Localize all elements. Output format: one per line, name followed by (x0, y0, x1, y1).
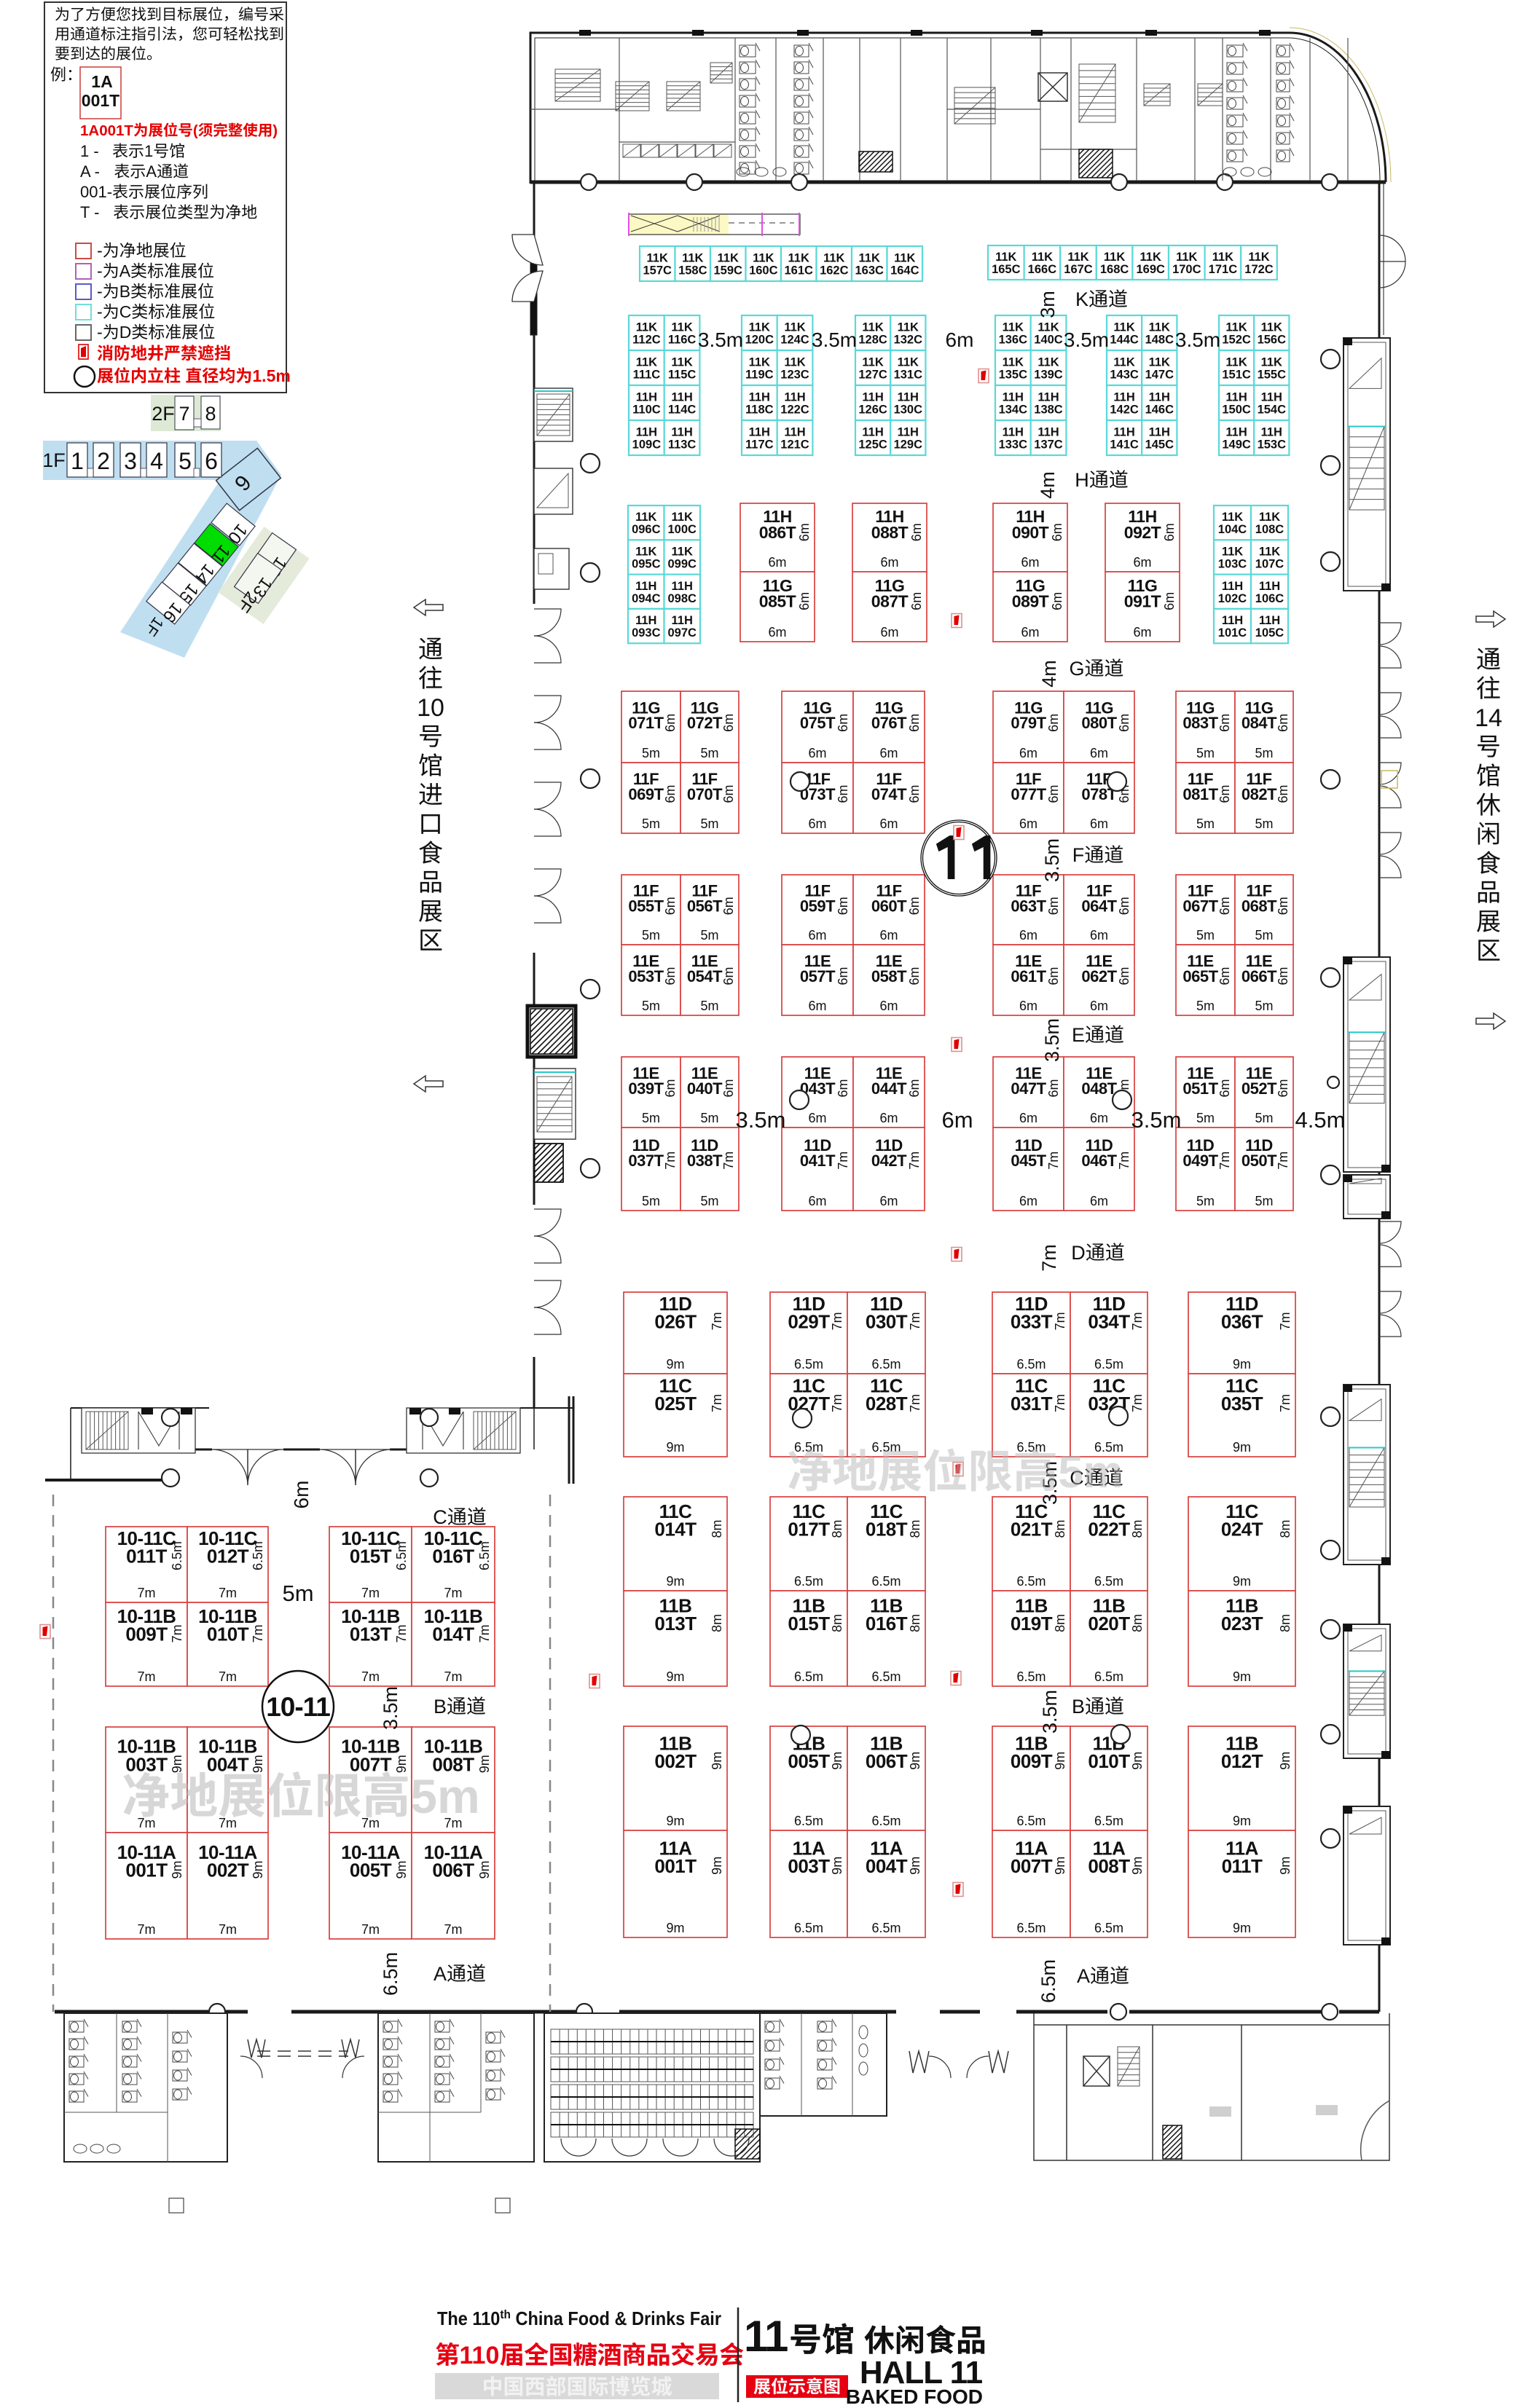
svg-text:3.5m: 3.5m (1039, 1690, 1061, 1734)
svg-text:11H: 11H (898, 391, 919, 404)
svg-text:6m: 6m (797, 523, 812, 541)
svg-text:9m: 9m (666, 1357, 684, 1372)
svg-text:150C: 150C (1222, 404, 1251, 417)
svg-text:11H: 11H (636, 426, 657, 439)
svg-text:6m: 6m (907, 897, 922, 915)
svg-text:T -: T - (80, 203, 99, 221)
svg-text:6.5m: 6.5m (1016, 1921, 1046, 1935)
svg-text:028T: 028T (866, 1393, 908, 1414)
svg-text:6m: 6m (797, 592, 812, 610)
svg-text:035T: 035T (1221, 1393, 1263, 1414)
svg-text:6m: 6m (663, 897, 678, 915)
svg-text:060T: 060T (871, 897, 907, 916)
svg-text:11K: 11K (682, 252, 703, 265)
svg-text:3.5m: 3.5m (380, 1686, 401, 1730)
svg-text:124C: 124C (780, 334, 809, 347)
svg-text:11K: 11K (859, 252, 880, 265)
svg-text:054T: 054T (687, 967, 723, 985)
svg-text:9m: 9m (1130, 1752, 1145, 1770)
svg-text:6m: 6m (1162, 523, 1177, 541)
svg-text:8m: 8m (710, 1614, 724, 1632)
svg-text:9m: 9m (1053, 1857, 1067, 1875)
svg-text:045T: 045T (1011, 1152, 1046, 1170)
svg-text:065T: 065T (1182, 967, 1218, 985)
svg-text:6m: 6m (1090, 817, 1108, 831)
svg-text:11K: 11K (635, 511, 656, 524)
svg-text:1: 1 (144, 142, 153, 160)
svg-text:071T: 071T (628, 714, 664, 732)
svg-text:074T: 074T (871, 785, 907, 803)
svg-text:050T: 050T (1241, 1152, 1277, 1170)
svg-text:9m: 9m (666, 1921, 684, 1935)
svg-text:6m: 6m (721, 1079, 736, 1097)
svg-text:6.5m: 6.5m (871, 1921, 901, 1935)
svg-text:063T: 063T (1011, 897, 1046, 916)
svg-text:128C: 128C (858, 334, 887, 347)
svg-text:9m: 9m (1233, 1574, 1251, 1589)
svg-text:6m: 6m (808, 746, 826, 760)
svg-text:145C: 145C (1145, 438, 1174, 452)
svg-text:121C: 121C (780, 438, 809, 452)
svg-text:7m: 7m (1217, 1152, 1232, 1170)
svg-text:031T: 031T (1011, 1393, 1053, 1414)
svg-text:11K: 11K (749, 356, 770, 369)
svg-text:7m: 7m (1276, 1152, 1290, 1170)
svg-text:6m: 6m (1019, 1194, 1037, 1208)
svg-text:123C: 123C (780, 369, 809, 382)
svg-text:6m: 6m (879, 1111, 898, 1125)
svg-text:147C: 147C (1145, 369, 1174, 382)
svg-text:6m: 6m (1021, 625, 1039, 640)
svg-text:5m: 5m (1255, 746, 1273, 760)
svg-text:6m: 6m (1050, 523, 1064, 541)
svg-text:11K: 11K (749, 321, 770, 334)
svg-text:004T: 004T (207, 1753, 249, 1775)
svg-text:5m: 5m (1058, 1447, 1123, 1498)
svg-text:9m: 9m (394, 1860, 409, 1878)
svg-text:11K: 11K (1140, 251, 1161, 264)
svg-text:066T: 066T (1241, 967, 1277, 985)
svg-text:7m: 7m (361, 1669, 380, 1684)
svg-text:6m: 6m (721, 897, 736, 915)
svg-text:7m: 7m (1278, 1312, 1292, 1330)
svg-text:B: B (1072, 1696, 1085, 1718)
svg-text:025T: 025T (654, 1393, 697, 1414)
svg-text:5m: 5m (700, 928, 718, 943)
svg-text:5m: 5m (700, 817, 718, 831)
svg-text:7m: 7m (908, 1394, 922, 1412)
svg-text:11K: 11K (1113, 321, 1134, 334)
svg-text:7: 7 (179, 403, 189, 425)
svg-text:062T: 062T (1081, 967, 1117, 985)
svg-text:G: G (1070, 658, 1085, 680)
svg-text:012T: 012T (207, 1546, 249, 1567)
svg-text:092T: 092T (1124, 523, 1161, 542)
svg-text:11H: 11H (1037, 391, 1059, 404)
svg-text:007T: 007T (350, 1753, 392, 1775)
svg-text:7m: 7m (721, 1152, 736, 1170)
svg-text:6m: 6m (1019, 999, 1037, 1013)
svg-text:012T: 012T (1221, 1750, 1263, 1772)
svg-text:11K: 11K (1037, 321, 1059, 334)
svg-text:7m: 7m (1117, 1152, 1131, 1170)
svg-text:6.5m: 6.5m (794, 1357, 823, 1372)
svg-text:001T: 001T (654, 1855, 697, 1877)
svg-text:7m: 7m (251, 1624, 265, 1642)
svg-text:6m: 6m (836, 1079, 850, 1097)
svg-text:9m: 9m (170, 1860, 184, 1878)
svg-text:137C: 137C (1034, 438, 1063, 452)
svg-text:105C: 105C (1255, 626, 1284, 640)
svg-text:018T: 018T (866, 1519, 908, 1541)
svg-text:11H: 11H (1113, 391, 1134, 404)
svg-text:149C: 149C (1222, 438, 1251, 452)
svg-text:11H: 11H (635, 614, 656, 627)
svg-text:E: E (1072, 1024, 1085, 1046)
svg-text:B: B (434, 1696, 447, 1718)
svg-text:110: 110 (460, 2342, 500, 2369)
svg-text:7m: 7m (219, 1669, 237, 1684)
svg-text:11K: 11K (671, 356, 692, 369)
svg-text:11K: 11K (671, 321, 692, 334)
svg-text:102C: 102C (1218, 592, 1247, 605)
svg-text:6m: 6m (1019, 817, 1037, 831)
svg-text:5m: 5m (1196, 928, 1215, 943)
svg-text:7m: 7m (1278, 1394, 1292, 1412)
svg-text:119C: 119C (745, 369, 774, 382)
svg-text:8m: 8m (1053, 1614, 1067, 1632)
svg-text:106C: 106C (1255, 592, 1284, 605)
svg-text:101C: 101C (1218, 626, 1247, 640)
svg-text:059T: 059T (800, 897, 836, 916)
svg-text:11K: 11K (784, 356, 805, 369)
svg-text:11H: 11H (749, 426, 770, 439)
svg-text:164C: 164C (890, 264, 919, 278)
svg-text:6.5m: 6.5m (1094, 1814, 1123, 1828)
svg-text:C: C (433, 1506, 447, 1528)
svg-text:6m: 6m (1021, 555, 1039, 570)
svg-text:6m: 6m (290, 1481, 313, 1509)
svg-text:7m: 7m (361, 1922, 380, 1937)
svg-text:143C: 143C (1110, 369, 1139, 382)
svg-text:1.5m: 1.5m (252, 366, 290, 385)
svg-text:004T: 004T (866, 1855, 908, 1877)
svg-text:020T: 020T (1088, 1613, 1130, 1634)
svg-text:107C: 107C (1255, 557, 1284, 570)
svg-text:7m: 7m (1130, 1394, 1145, 1412)
svg-text:080T: 080T (1081, 714, 1117, 732)
svg-text:5m: 5m (642, 1111, 660, 1125)
svg-text:061T: 061T (1011, 967, 1046, 985)
svg-text:5m: 5m (700, 746, 718, 760)
svg-text:11K: 11K (1261, 321, 1282, 334)
svg-text:157C: 157C (643, 264, 672, 278)
svg-text:6m: 6m (909, 592, 924, 610)
svg-text:003T: 003T (788, 1855, 830, 1877)
svg-text:7m: 7m (361, 1586, 380, 1600)
svg-text:6m: 6m (1217, 897, 1232, 915)
svg-text:152C: 152C (1222, 334, 1251, 347)
svg-text:-: - (97, 302, 103, 321)
svg-text:6m: 6m (1090, 746, 1108, 760)
svg-text:6m: 6m (1217, 1079, 1232, 1097)
svg-text:11K: 11K (647, 252, 668, 265)
svg-text:-: - (97, 261, 103, 280)
svg-text:7m: 7m (444, 1922, 462, 1937)
svg-text:153C: 153C (1258, 438, 1287, 452)
svg-text:6m: 6m (879, 928, 898, 943)
svg-text:5m: 5m (1196, 817, 1215, 831)
svg-text:165C: 165C (992, 263, 1021, 276)
svg-text:A: A (146, 162, 157, 181)
svg-text:6m: 6m (836, 967, 850, 985)
svg-text:057T: 057T (800, 967, 836, 985)
svg-text:11K: 11K (1259, 545, 1280, 558)
svg-text:9m: 9m (830, 1752, 844, 1770)
svg-text:11H: 11H (1222, 580, 1243, 593)
svg-text:4.5m: 4.5m (1295, 1107, 1346, 1133)
svg-text:7m: 7m (830, 1394, 844, 1412)
svg-text:6m: 6m (1019, 928, 1037, 943)
svg-text:9m: 9m (1233, 1357, 1251, 1372)
svg-text:099C: 099C (667, 557, 697, 570)
svg-text:11H: 11H (635, 580, 656, 593)
svg-text:021T: 021T (1011, 1519, 1053, 1541)
svg-text:6m: 6m (946, 328, 974, 351)
svg-text:10-11: 10-11 (266, 1692, 330, 1722)
svg-text:139C: 139C (1034, 369, 1063, 382)
svg-text:7m: 7m (830, 1312, 844, 1330)
svg-text:144C: 144C (1110, 334, 1139, 347)
svg-text:6m: 6m (1117, 967, 1131, 985)
svg-text:11H: 11H (1113, 426, 1134, 439)
svg-text:11K: 11K (788, 252, 809, 265)
svg-text:11K: 11K (1259, 511, 1280, 524)
svg-text:-: - (97, 282, 103, 301)
svg-text:094C: 094C (632, 592, 661, 605)
svg-text:11K: 11K (672, 511, 693, 524)
svg-text:8m: 8m (1278, 1519, 1292, 1538)
svg-text:6m: 6m (1046, 784, 1061, 803)
svg-text:5m: 5m (1196, 1194, 1215, 1208)
svg-text:9m: 9m (477, 1860, 492, 1878)
svg-text:126C: 126C (858, 404, 887, 417)
svg-text:6.5m: 6.5m (380, 1952, 401, 1996)
svg-text:11K: 11K (1176, 251, 1197, 264)
svg-text:9m: 9m (830, 1857, 844, 1875)
svg-text:F: F (1072, 844, 1085, 866)
svg-text:6m: 6m (1217, 784, 1232, 803)
svg-text:11H: 11H (636, 391, 657, 404)
svg-text:098C: 098C (667, 592, 697, 605)
svg-text:5m: 5m (642, 999, 660, 1013)
svg-text:6m: 6m (1276, 967, 1290, 985)
svg-text:6m: 6m (808, 1111, 826, 1125)
svg-text:154C: 154C (1258, 404, 1287, 417)
svg-text:6m: 6m (1162, 592, 1177, 610)
svg-text:014T: 014T (654, 1519, 697, 1541)
svg-text:A: A (434, 1963, 447, 1985)
svg-text:079T: 079T (1011, 714, 1046, 732)
svg-text:11H: 11H (1259, 580, 1280, 593)
svg-text:138C: 138C (1034, 404, 1063, 417)
svg-text:055T: 055T (628, 897, 664, 916)
svg-text:015T: 015T (788, 1613, 830, 1634)
svg-text:9m: 9m (666, 1574, 684, 1589)
svg-text:6m: 6m (1046, 897, 1061, 915)
svg-text:075T: 075T (800, 714, 836, 732)
svg-text:-: - (97, 241, 103, 260)
svg-text:11K: 11K (1212, 251, 1233, 264)
svg-text:6m: 6m (907, 714, 922, 732)
svg-text:127C: 127C (858, 369, 887, 382)
svg-text:11K: 11K (635, 545, 656, 558)
svg-text:11K: 11K (1003, 321, 1024, 334)
svg-text:030T: 030T (866, 1311, 908, 1333)
svg-text:118C: 118C (745, 404, 774, 417)
svg-text:B: B (119, 282, 130, 301)
svg-text:058T: 058T (871, 967, 907, 985)
svg-text:7m: 7m (361, 1816, 380, 1830)
svg-text:D: D (1071, 1242, 1086, 1264)
svg-text:A: A (1077, 1965, 1090, 1987)
svg-text:11H: 11H (672, 614, 693, 627)
svg-text:7m: 7m (908, 1312, 922, 1330)
svg-text:001T: 001T (82, 91, 119, 110)
svg-text:112C: 112C (632, 334, 661, 347)
svg-text:103C: 103C (1218, 557, 1247, 570)
svg-text:6m: 6m (1090, 928, 1108, 943)
svg-text:077T: 077T (1011, 785, 1046, 803)
svg-text:067T: 067T (1182, 897, 1218, 916)
svg-text:6m: 6m (1276, 714, 1290, 732)
svg-text:6m: 6m (836, 897, 850, 915)
svg-text:D: D (119, 323, 132, 342)
svg-text:11K: 11K (894, 252, 915, 265)
svg-text:6m: 6m (1117, 714, 1131, 732)
svg-text:8m: 8m (1130, 1614, 1145, 1632)
svg-text:7m: 7m (1130, 1312, 1145, 1330)
svg-text:1F: 1F (42, 449, 66, 471)
svg-text:11K: 11K (1037, 356, 1059, 369)
svg-text:005T: 005T (788, 1750, 830, 1772)
svg-text:134C: 134C (999, 404, 1028, 417)
svg-text:001T: 001T (125, 1860, 168, 1881)
svg-text:120C: 120C (745, 334, 774, 347)
svg-text:6m: 6m (1046, 714, 1061, 732)
svg-text:11K: 11K (1104, 251, 1125, 264)
svg-text:5m: 5m (642, 928, 660, 943)
svg-text:086T: 086T (759, 523, 796, 542)
svg-text:8m: 8m (1130, 1519, 1145, 1538)
svg-text:7m: 7m (137, 1586, 155, 1600)
svg-text:148C: 148C (1145, 334, 1174, 347)
svg-text:110C: 110C (632, 404, 661, 417)
svg-text:122C: 122C (780, 404, 809, 417)
svg-text:9m: 9m (710, 1752, 724, 1770)
svg-text:6.5m: 6.5m (794, 1574, 823, 1589)
svg-text:017T: 017T (788, 1519, 830, 1541)
svg-text:6m: 6m (1019, 746, 1037, 760)
svg-text:K: K (1075, 288, 1088, 310)
svg-text:7m: 7m (1038, 1244, 1060, 1272)
svg-text:7m: 7m (137, 1816, 155, 1830)
svg-text:3.5m: 3.5m (812, 328, 857, 351)
svg-text:8m: 8m (908, 1519, 922, 1538)
svg-text:034T: 034T (1088, 1311, 1130, 1333)
svg-text:7m: 7m (836, 1152, 850, 1170)
svg-text:6.5m: 6.5m (1016, 1814, 1046, 1828)
svg-text:9m: 9m (1278, 1857, 1292, 1875)
svg-text:5m: 5m (1255, 928, 1273, 943)
svg-text:053T: 053T (628, 967, 664, 985)
svg-text:11K: 11K (753, 252, 774, 265)
svg-text:11K: 11K (1222, 511, 1243, 524)
svg-text:9m: 9m (666, 1814, 684, 1828)
svg-text:6m: 6m (1217, 967, 1232, 985)
svg-text:11H: 11H (1261, 426, 1282, 439)
svg-text:3.5m: 3.5m (1064, 328, 1109, 351)
svg-text:11K: 11K (1149, 356, 1170, 369)
svg-text:156C: 156C (1258, 334, 1287, 347)
svg-text:133C: 133C (999, 438, 1028, 452)
svg-text:7m: 7m (137, 1922, 155, 1937)
svg-text:132C: 132C (894, 334, 923, 347)
svg-text:6m: 6m (1090, 1111, 1108, 1125)
svg-text:5: 5 (179, 448, 192, 474)
svg-text:5m: 5m (1255, 1194, 1273, 1208)
svg-text:6m: 6m (1090, 999, 1108, 1013)
svg-text:151C: 151C (1222, 369, 1251, 382)
svg-text:091T: 091T (1124, 592, 1161, 611)
svg-text:6m: 6m (907, 784, 922, 803)
svg-text:076T: 076T (871, 714, 907, 732)
svg-text:159C: 159C (713, 264, 742, 278)
svg-text:11H: 11H (1222, 614, 1243, 627)
svg-text:3.5m: 3.5m (1131, 1107, 1182, 1133)
svg-text:001-: 001- (80, 183, 112, 201)
svg-text:104C: 104C (1218, 523, 1247, 536)
svg-text:11K: 11K (1225, 321, 1247, 334)
svg-text:6m: 6m (1276, 1079, 1290, 1097)
svg-text:6m: 6m (663, 967, 678, 985)
svg-text:6.5m: 6.5m (1094, 1574, 1123, 1589)
svg-text:11H: 11H (749, 391, 770, 404)
svg-text:009T: 009T (125, 1624, 168, 1645)
svg-text:036T: 036T (1221, 1311, 1263, 1333)
svg-text:5m: 5m (642, 817, 660, 831)
svg-text:5m: 5m (1255, 1111, 1273, 1125)
svg-text:6m: 6m (1276, 897, 1290, 915)
svg-text:6m: 6m (1090, 1194, 1108, 1208)
svg-text:11K: 11K (1113, 356, 1134, 369)
svg-text:093C: 093C (632, 626, 661, 640)
svg-text:9m: 9m (1233, 1814, 1251, 1828)
svg-text:10: 10 (417, 694, 444, 722)
svg-text:5m: 5m (642, 1194, 660, 1208)
svg-text:1A: 1A (91, 72, 112, 91)
svg-text:8m: 8m (1053, 1519, 1067, 1538)
svg-text:013T: 013T (350, 1624, 392, 1645)
svg-text:064T: 064T (1081, 897, 1117, 916)
svg-text:11K: 11K (1003, 356, 1024, 369)
svg-text:116C: 116C (668, 334, 697, 347)
svg-text:114C: 114C (668, 404, 697, 417)
svg-text:125C: 125C (858, 438, 887, 452)
svg-text:11H: 11H (898, 426, 919, 439)
svg-text:171C: 171C (1209, 263, 1238, 276)
svg-text:11: 11 (744, 2312, 788, 2361)
